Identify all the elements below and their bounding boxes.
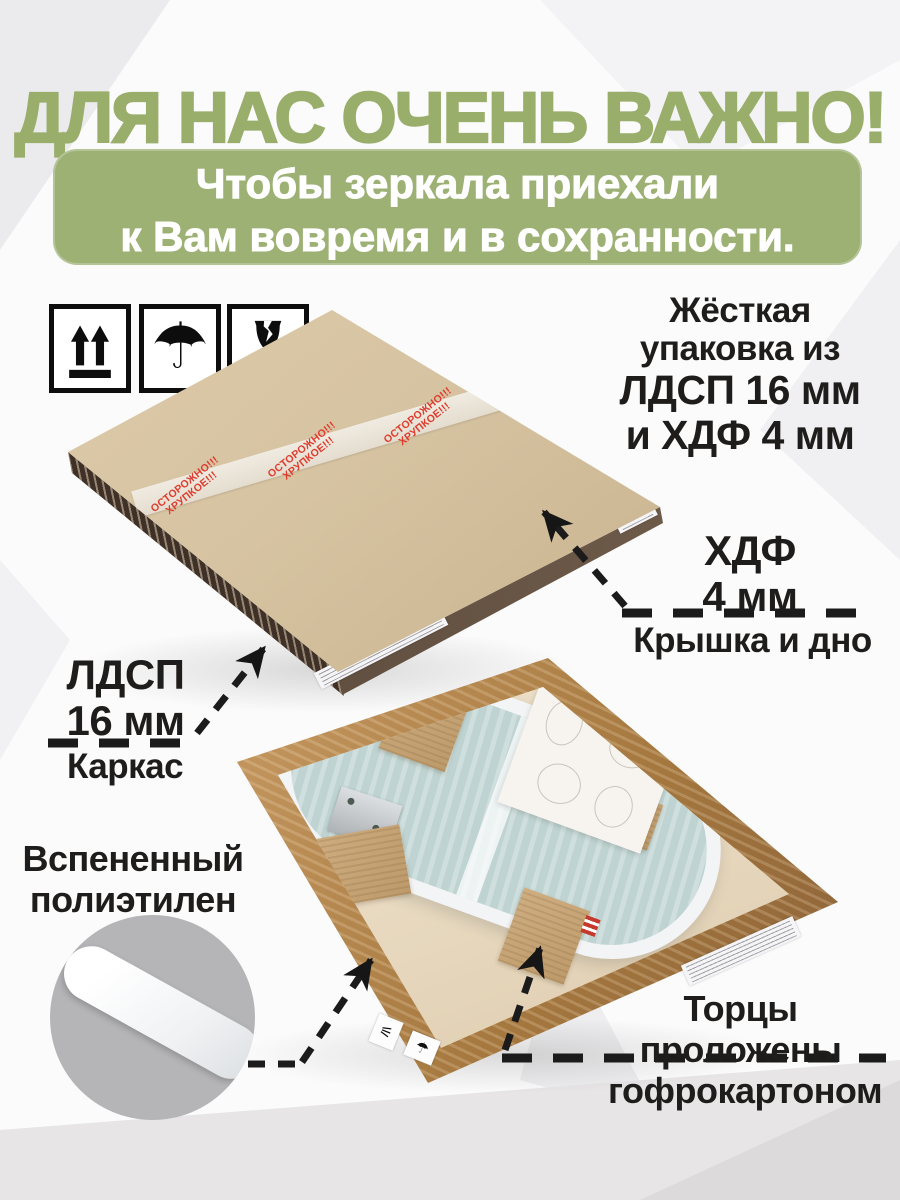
warning-tape-text: ОСТОРОЖНО!!!ХРУПКОЕ!!!: [266, 420, 344, 488]
foam-sample-photo: [50, 915, 255, 1120]
ldsp-note: ЛДСП 16 мм: [38, 652, 213, 744]
page-title: ДЛЯ НАС ОЧЕНЬ ВАЖНО!: [0, 78, 900, 159]
subtitle-line-2: к Вам вовремя и в сохранности.: [53, 210, 862, 263]
warning-tape-text: ОСТОРОЖНО!!!ХРУПКОЕ!!!: [383, 386, 461, 454]
edges-line-1: Торцы: [608, 988, 873, 1029]
edges-line-2: проложены: [608, 1029, 873, 1070]
foam-note: Вспененный полиэтилен: [18, 838, 248, 920]
edges-line-3: гофрокартоном: [608, 1070, 873, 1111]
hdf-thickness: 4 мм: [640, 574, 860, 620]
infographic-page: ДЛЯ НАС ОЧЕНЬ ВАЖНО! Чтобы зеркала приех…: [0, 0, 900, 1200]
rigid-packaging-note: Жёсткая упаковка из ЛДСП 16 мм и ХДФ 4 м…: [615, 292, 865, 458]
ldsp-thickness: 16 мм: [38, 698, 213, 744]
rigid-line-2: упаковка из: [615, 330, 865, 368]
hdf-caption: Крышка и дно: [625, 622, 880, 660]
subtitle-line-1: Чтобы зеркала приехали: [53, 157, 862, 210]
foam-tube: [54, 936, 255, 1088]
warning-tape: ОСТОРОЖНО!!!ХРУПКОЕ!!! ОСТОРОЖНО!!!ХРУПК…: [131, 356, 595, 517]
warning-tape-text: ОСТОРОЖНО!!!ХРУПКОЕ!!!: [149, 455, 227, 523]
ldsp-material: ЛДСП: [38, 652, 213, 698]
closed-package-photo: ОСТОРОЖНО!!!ХРУПКОЕ!!! ОСТОРОЖНО!!!ХРУПК…: [55, 295, 670, 700]
rigid-line-1: Жёсткая: [615, 292, 865, 330]
hdf-note: ХДФ 4 мм: [640, 528, 860, 620]
edges-note: Торцы проложены гофрокартоном: [608, 988, 873, 1111]
ldsp-caption: Каркас: [20, 748, 230, 786]
subtitle-banner: Чтобы зеркала приехали к Вам вовремя и в…: [53, 149, 862, 265]
warning-tape-text: ОСТОРОЖНО!!!ХРУПКОЕ!!!: [499, 351, 577, 419]
foam-line-1: Вспененный: [18, 838, 248, 879]
hdf-material: ХДФ: [640, 528, 860, 574]
foam-line-2: полиэтилен: [18, 879, 248, 920]
rigid-line-4: и ХДФ 4 мм: [615, 413, 865, 458]
rigid-line-3: ЛДСП 16 мм: [615, 368, 865, 413]
